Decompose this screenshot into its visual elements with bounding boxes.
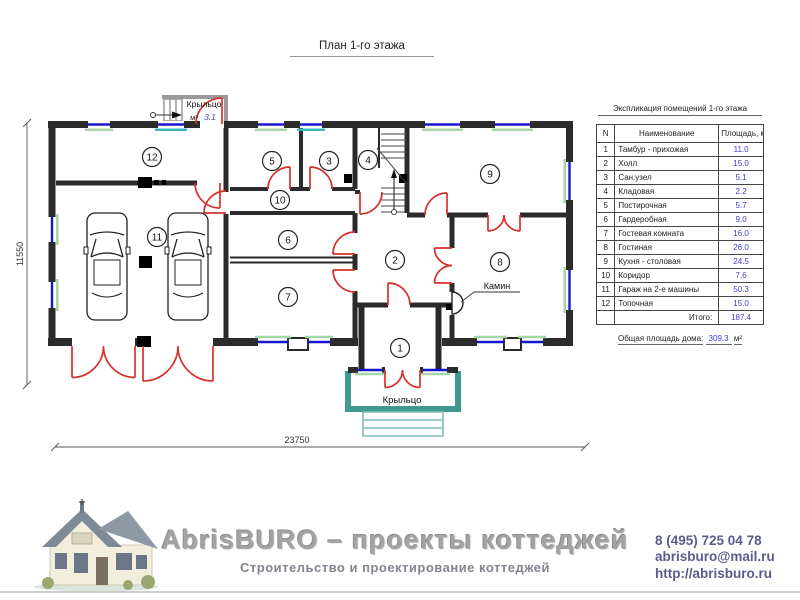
row-number: 8 bbox=[597, 241, 615, 255]
room-marker-number: 3 bbox=[326, 157, 332, 168]
room-marker-number: 5 bbox=[269, 157, 275, 168]
table-row: 3Сан.узел5.1 bbox=[597, 171, 764, 185]
room-marker-number: 6 bbox=[285, 236, 291, 247]
room-marker-number: 11 bbox=[152, 233, 163, 244]
dimension-width-label: 23750 bbox=[284, 435, 309, 445]
room-area: 26.0 bbox=[719, 241, 764, 255]
row-number: 2 bbox=[597, 157, 615, 171]
total-empty bbox=[597, 311, 615, 325]
top-porch-unit: м² bbox=[190, 113, 198, 122]
room-marker-number: 8 bbox=[497, 258, 503, 269]
level-mark-icon bbox=[151, 112, 183, 119]
col-header-area: Площадь, м² bbox=[719, 125, 764, 143]
overall-area-label: Общая площадь дома: bbox=[618, 334, 703, 345]
top-porch-label: Крыльцо bbox=[187, 99, 222, 109]
room-name: Тамбур - прихожая bbox=[615, 143, 719, 157]
room-name: Гостевая комната bbox=[615, 227, 719, 241]
row-number: 1 bbox=[597, 143, 615, 157]
room-area: 7.6 bbox=[719, 269, 764, 283]
room-marker-number: 2 bbox=[392, 256, 398, 267]
room-name: Гостиная bbox=[615, 241, 719, 255]
room-area: 15.0 bbox=[719, 157, 764, 171]
table-row: 12Топочная15.0 bbox=[597, 297, 764, 311]
room-name: Сан.узел bbox=[615, 171, 719, 185]
contact-block: 8 (495) 725 04 78 abrisburo@mail.ru http… bbox=[655, 533, 795, 582]
total-value: 187.4 bbox=[719, 311, 764, 325]
room-area: 15.0 bbox=[719, 297, 764, 311]
table-row: 6Гардеробная9.0 bbox=[597, 213, 764, 227]
table-header-row: N Наименование Площадь, м² bbox=[597, 125, 764, 143]
room-area: 16.0 bbox=[719, 227, 764, 241]
row-number: 12 bbox=[597, 297, 615, 311]
explication-panel: Экспликация помещений 1-го этажа N Наиме… bbox=[596, 104, 764, 343]
col-header-name: Наименование bbox=[615, 125, 719, 143]
row-number: 3 bbox=[597, 171, 615, 185]
room-name: Кухня - столовая bbox=[615, 255, 719, 269]
room-area: 5.1 bbox=[719, 171, 764, 185]
room-marker-number: 7 bbox=[285, 293, 291, 304]
legend-table-body: 1Тамбур - прихожая11.02Холл15.03Сан.узел… bbox=[597, 143, 764, 311]
room-name: Коридор bbox=[615, 269, 719, 283]
room-name: Холл bbox=[615, 157, 719, 171]
room-marker-number: 1 bbox=[397, 344, 403, 355]
row-number: 9 bbox=[597, 255, 615, 269]
room-marker-number: 4 bbox=[365, 156, 371, 167]
col-header-n: N bbox=[597, 125, 615, 143]
table-row: 10Коридор7.6 bbox=[597, 269, 764, 283]
brand-tagline: Строительство и проектирование коттеджей bbox=[150, 560, 640, 575]
total-label: Итого: bbox=[615, 311, 719, 325]
row-number: 11 bbox=[597, 283, 615, 297]
car bbox=[84, 213, 130, 320]
total-row: Итого: 187.4 bbox=[597, 311, 764, 325]
room-area: 9.0 bbox=[719, 213, 764, 227]
contact-email: abrisburo@mail.ru bbox=[655, 549, 795, 565]
table-row: 5Постирочная5.7 bbox=[597, 199, 764, 213]
contact-phone: 8 (495) 725 04 78 bbox=[655, 533, 795, 549]
footer-divider bbox=[0, 591, 800, 593]
row-number: 10 bbox=[597, 269, 615, 283]
cottage-illustration bbox=[30, 497, 162, 593]
top-porch-area: 3.1 bbox=[204, 112, 216, 122]
inner-walls bbox=[56, 121, 566, 370]
overall-area-value: 309.3 bbox=[706, 334, 732, 345]
bottom-porch-label: Крыльцо bbox=[383, 395, 422, 406]
dimension-height-label: 11550 bbox=[15, 242, 25, 266]
table-row: 11Гараж на 2-е машины50.3 bbox=[597, 283, 764, 297]
contact-site: http://abrisburo.ru bbox=[655, 566, 795, 582]
overall-area: Общая площадь дома: 309.3 м² bbox=[596, 334, 764, 343]
row-number: 4 bbox=[597, 185, 615, 199]
room-name: Топочная bbox=[615, 297, 719, 311]
room-name: Постирочная bbox=[615, 199, 719, 213]
explication-table: N Наименование Площадь, м² 1Тамбур - при… bbox=[596, 124, 764, 325]
explication-title: Экспликация помещений 1-го этажа bbox=[598, 104, 762, 116]
room-area: 24.5 bbox=[719, 255, 764, 269]
row-number: 7 bbox=[597, 227, 615, 241]
room-marker-number: 9 bbox=[487, 170, 493, 181]
room-marker-number: 10 bbox=[274, 196, 286, 207]
brand-title: AbrisBURO – проекты коттеджей bbox=[150, 525, 640, 556]
room-area: 2.2 bbox=[719, 185, 764, 199]
room-name: Гараж на 2-е машины bbox=[615, 283, 719, 297]
fireplace bbox=[452, 292, 520, 314]
room-name: Гардеробная bbox=[615, 213, 719, 227]
table-row: 8Гостиная26.0 bbox=[597, 241, 764, 255]
room-area: 50.3 bbox=[719, 283, 764, 297]
table-row: 1Тамбур - прихожая11.0 bbox=[597, 143, 764, 157]
room-name: Кладовая bbox=[615, 185, 719, 199]
table-row: 9Кухня - столовая24.5 bbox=[597, 255, 764, 269]
fireplace-label: Камин bbox=[484, 281, 510, 291]
row-number: 6 bbox=[597, 213, 615, 227]
table-row: 4Кладовая2.2 bbox=[597, 185, 764, 199]
table-row: 2Холл15.0 bbox=[597, 157, 764, 171]
table-row: 7Гостевая комната16.0 bbox=[597, 227, 764, 241]
room-area: 5.7 bbox=[719, 199, 764, 213]
overall-area-unit: м² bbox=[734, 334, 742, 345]
car bbox=[165, 213, 211, 320]
row-number: 5 bbox=[597, 199, 615, 213]
room-marker-number: 12 bbox=[146, 153, 158, 164]
room-area: 11.0 bbox=[719, 143, 764, 157]
